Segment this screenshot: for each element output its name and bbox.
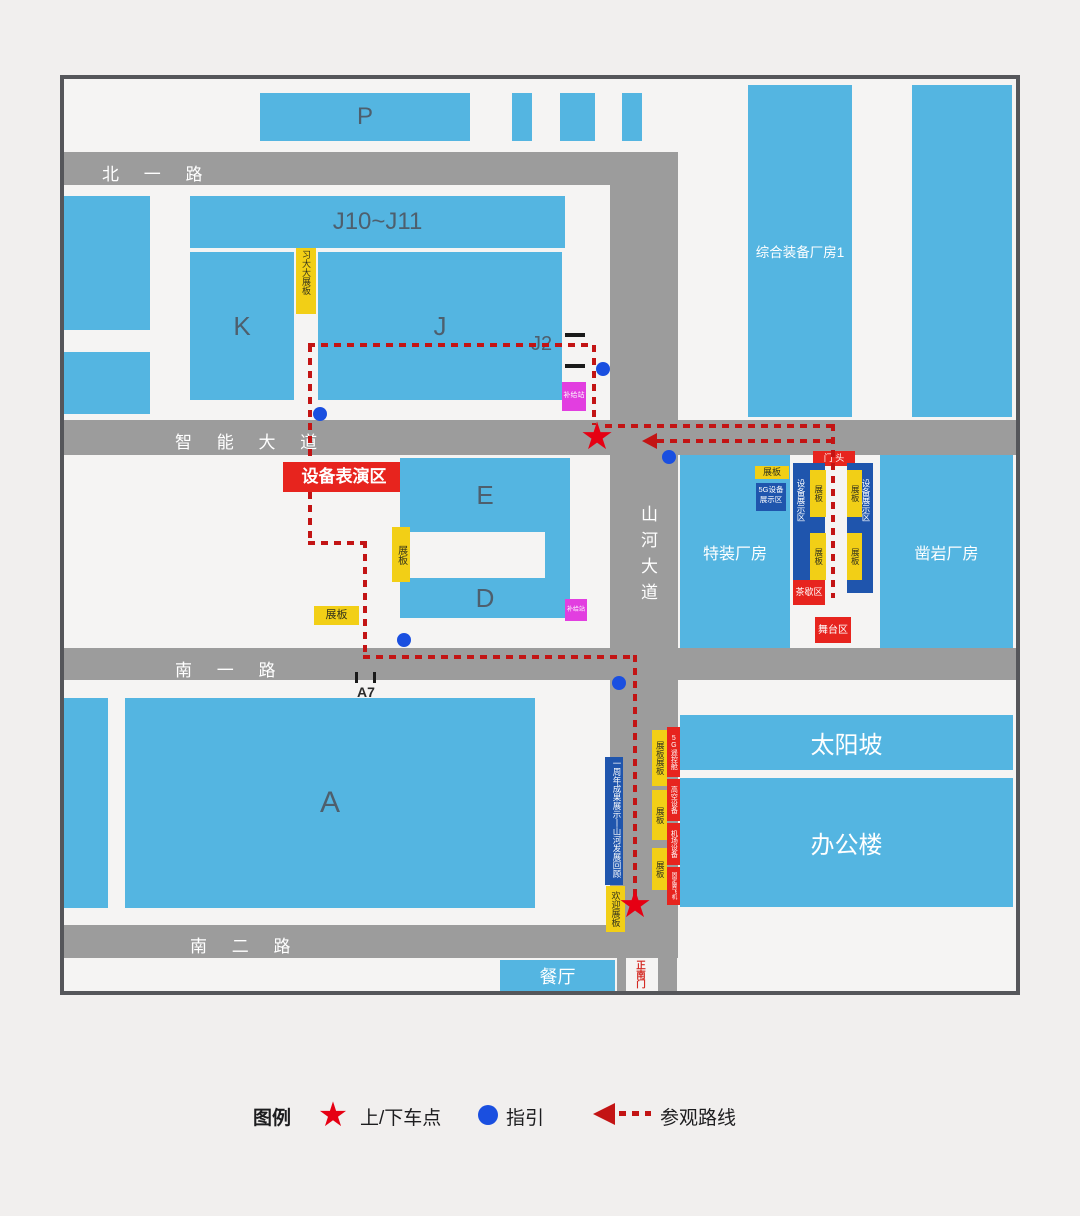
- display-board-col-2: 展板: [652, 790, 667, 840]
- j2-tick-1: [565, 333, 585, 337]
- road-label-zhineng: 智 能 大 道: [175, 428, 327, 453]
- supply-station-1: 补给站: [562, 382, 586, 411]
- building-bangonglou-label: 办公楼: [811, 825, 883, 860]
- pickup-dropoff-star-2: ★: [618, 886, 652, 924]
- zone-airport-equipment: 机场设备: [667, 823, 680, 865]
- building-d: D: [400, 578, 570, 618]
- pickup-dropoff-star-1: ★: [580, 418, 614, 456]
- south-gate-label: 正南门: [630, 960, 646, 991]
- display-board-strip-left-2: 展板: [810, 533, 826, 580]
- building-small-3: [622, 93, 642, 141]
- g5-line-1: 5G设备: [756, 485, 786, 495]
- a7-tick-2: [373, 672, 376, 683]
- legend-route-label: 参观路线: [660, 1103, 736, 1130]
- xi-display-board-label: 习大大展板: [296, 248, 316, 314]
- south-gate-post-1: [617, 958, 626, 991]
- tea-break-area-label: 茶歇区: [793, 580, 825, 605]
- guide-dot-1: [313, 407, 327, 421]
- display-board-col-3: 展板: [652, 848, 667, 890]
- building-e-label: E: [476, 480, 493, 511]
- display-board-south-d: 展板: [314, 606, 359, 625]
- route-segment-zhineng-lower: [657, 439, 833, 443]
- building-k: K: [190, 252, 294, 400]
- display-board-e-d: 展板: [392, 527, 410, 582]
- route-segment-jog: [308, 541, 367, 545]
- guide-dot-2: [596, 362, 610, 376]
- building-taiyangpo-label: 太阳坡: [811, 725, 883, 760]
- exhibit-strip-left-label: 设备展示区: [795, 479, 807, 522]
- route-segment-to-star2: [633, 655, 637, 897]
- building-tezhuang-label: 特装厂房: [703, 540, 767, 564]
- building-left-2: [64, 352, 150, 414]
- building-left-1: [64, 196, 150, 330]
- building-p: P: [260, 93, 470, 141]
- site-map-page: { "roads": { "north1": "北 一 路", "zhineng…: [0, 0, 1080, 1216]
- south-gate-post-2: [658, 958, 677, 991]
- zone-5g-remote-cabin: 5G遥控舱: [667, 727, 680, 777]
- legend-guide-label: 指引: [506, 1103, 544, 1130]
- legend-pickup-label: 上/下车点: [360, 1103, 441, 1130]
- road-label-shanhe: 山河大道: [635, 505, 660, 609]
- road-south-2: [64, 925, 678, 958]
- building-e-annex: [545, 532, 570, 578]
- building-zonghe-1: 综合装备厂房1: [748, 85, 852, 417]
- g5-equipment-zone-label: 5G设备 展示区: [756, 483, 786, 511]
- building-canting-label: 餐厅: [540, 963, 576, 989]
- supply-station-2: 补给站: [565, 599, 587, 621]
- building-p-label: P: [357, 103, 373, 131]
- building-e: E: [400, 458, 570, 532]
- route-segment-zhineng-upper: [605, 424, 833, 428]
- building-k-label: K: [233, 311, 250, 342]
- g5-line-2: 展示区: [756, 495, 786, 505]
- building-small-2: [560, 93, 595, 141]
- legend-star-icon: ★: [318, 1098, 348, 1132]
- building-d-label: D: [476, 583, 495, 614]
- guide-dot-3: [662, 450, 676, 464]
- stage-area-label: 舞台区: [815, 617, 851, 643]
- a7-label: A7: [348, 684, 384, 700]
- a7-tick-1: [355, 672, 358, 683]
- guide-dot-4: [397, 633, 411, 647]
- building-taiyangpo: 太阳坡: [680, 715, 1013, 770]
- building-j10-j11: J10~J11: [190, 196, 565, 248]
- building-a-label: A: [320, 786, 340, 820]
- route-arrowhead: [642, 433, 657, 449]
- route-segment-south1: [363, 655, 635, 659]
- road-label-north-1: 北 一 路: [102, 160, 212, 185]
- building-zonghe-1-label: 综合装备厂房1: [756, 241, 845, 261]
- building-j10-j11-label: J10~J11: [333, 208, 423, 236]
- display-board-strip-right-1: 展板: [847, 470, 862, 517]
- building-zaoyan: 凿岩厂房: [880, 455, 1013, 648]
- map-frame: 北 一 路 智 能 大 道 南 一 路 南 二 路 山河大道 P 综合装备厂房1…: [60, 75, 1020, 995]
- legend-title: 图例: [253, 1103, 291, 1130]
- anniversary-history-strip: 一周年成果展示丨山河发展回顾: [605, 757, 623, 885]
- route-segment-to-star1: [592, 345, 596, 425]
- equipment-show-area-label: 设备表演区: [283, 462, 405, 492]
- display-board-col-1: 展板展板: [652, 730, 667, 786]
- zone-aerial-equipment: 高空设备: [667, 779, 680, 821]
- building-a-west-strip: [64, 698, 108, 908]
- legend-guide-dot-icon: [478, 1105, 498, 1125]
- route-segment-below-perf: [308, 492, 312, 543]
- road-label-south-2: 南 二 路: [190, 932, 300, 957]
- route-segment-to-perf-area: [308, 345, 312, 462]
- route-segment-to-south1: [363, 541, 367, 659]
- zone-aircraft: 固定翼飞机: [667, 867, 680, 905]
- building-j-label: J: [434, 311, 447, 342]
- building-zaoyan-label: 凿岩厂房: [914, 540, 978, 564]
- building-a: A: [125, 698, 535, 908]
- legend-route-arrow-icon: [593, 1103, 615, 1125]
- building-bangonglou: 办公楼: [680, 778, 1013, 907]
- building-small-1: [512, 93, 532, 141]
- guide-dot-5: [612, 676, 626, 690]
- road-label-south-1: 南 一 路: [175, 656, 285, 681]
- legend-route-dashes: [619, 1111, 651, 1116]
- display-board-strip-left-1: 展板: [810, 470, 826, 517]
- route-segment-j-corridor: [308, 343, 594, 347]
- display-board-strip-right-2: 展板: [847, 533, 862, 580]
- building-zonghe-2: [912, 85, 1012, 417]
- building-j: J: [318, 252, 562, 400]
- building-canting: 餐厅: [500, 960, 615, 991]
- j2-tick-2: [565, 364, 585, 368]
- route-segment-exhibit-corridor: [831, 424, 835, 598]
- display-board-exhibit-top: 展板: [755, 466, 789, 479]
